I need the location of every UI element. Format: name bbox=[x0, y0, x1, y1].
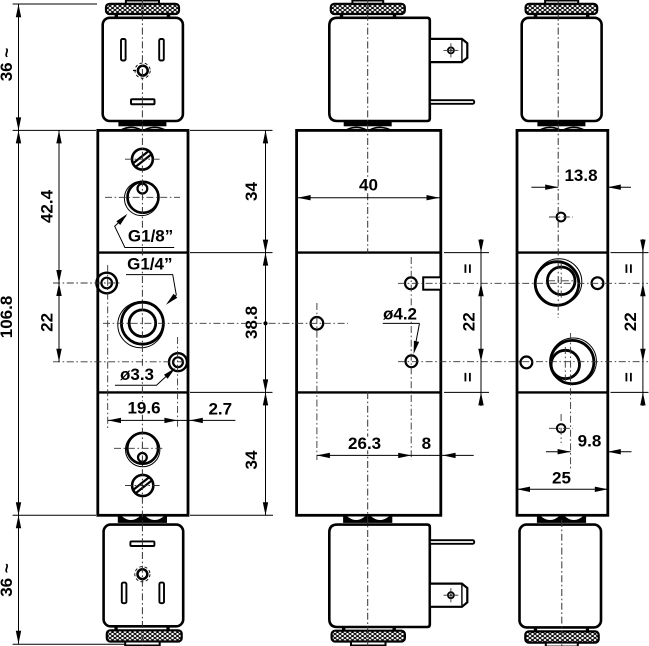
svg-text:13.8: 13.8 bbox=[564, 166, 597, 185]
svg-text:=: = bbox=[620, 372, 639, 382]
svg-text:22: 22 bbox=[38, 313, 57, 332]
svg-text:2.7: 2.7 bbox=[208, 400, 232, 419]
svg-text:22: 22 bbox=[621, 312, 640, 331]
svg-text:ø4.2: ø4.2 bbox=[383, 305, 417, 324]
svg-text:42.4: 42.4 bbox=[38, 189, 57, 223]
svg-text:=: = bbox=[620, 264, 639, 274]
svg-text:38.8: 38.8 bbox=[242, 306, 261, 339]
svg-text:G1/4”: G1/4” bbox=[127, 254, 172, 273]
svg-text:36 ~: 36 ~ bbox=[0, 48, 16, 82]
svg-text:=: = bbox=[458, 264, 477, 274]
svg-text:40: 40 bbox=[359, 176, 378, 195]
svg-text:ø3.3: ø3.3 bbox=[120, 365, 154, 384]
svg-text:34: 34 bbox=[242, 450, 261, 469]
svg-text:36 ~: 36 ~ bbox=[0, 563, 16, 597]
svg-text:106.8: 106.8 bbox=[0, 296, 16, 339]
svg-text:22: 22 bbox=[459, 312, 478, 331]
svg-text:9.8: 9.8 bbox=[578, 432, 602, 451]
svg-text:34: 34 bbox=[242, 182, 261, 201]
svg-text:25: 25 bbox=[552, 468, 571, 487]
svg-text:=: = bbox=[458, 372, 477, 382]
svg-text:19.6: 19.6 bbox=[127, 399, 160, 418]
svg-text:26.3: 26.3 bbox=[348, 434, 381, 453]
svg-text:G1/8”: G1/8” bbox=[128, 226, 173, 245]
svg-text:8: 8 bbox=[422, 434, 431, 453]
